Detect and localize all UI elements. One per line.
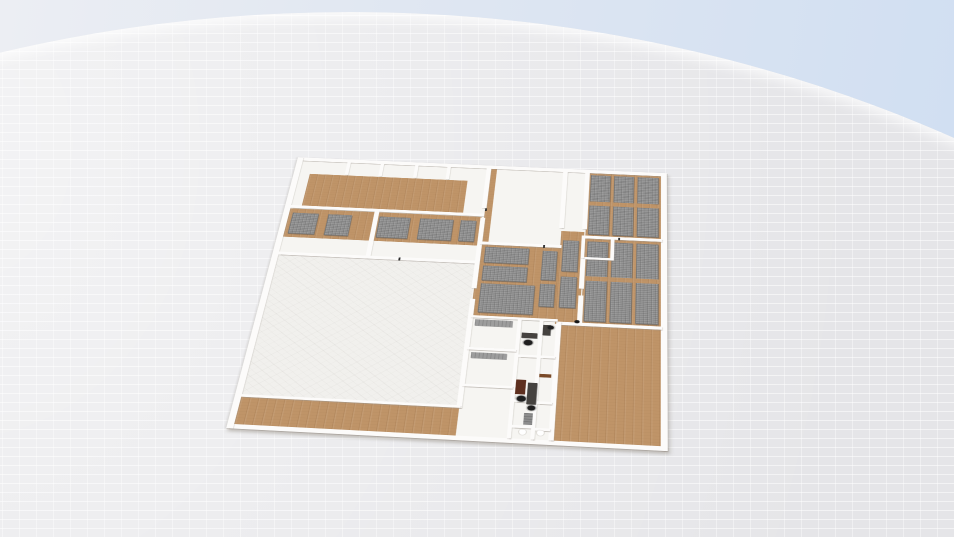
shelf-rack [538, 284, 555, 308]
shelf-rack [324, 214, 353, 236]
plant [574, 320, 579, 323]
wall [462, 384, 513, 389]
door-frame-mark [543, 245, 545, 248]
3d-viewport[interactable] [0, 0, 954, 537]
closet-stub [446, 167, 451, 179]
shelf-rack [376, 216, 411, 238]
wall [518, 354, 538, 357]
shelf-rack [477, 283, 534, 315]
office-chair [547, 325, 554, 329]
toilet [536, 430, 545, 437]
shelf-rack [417, 218, 454, 240]
shelf-rack [561, 240, 579, 272]
door-frame-mark [618, 238, 620, 241]
building-footprint [226, 157, 668, 451]
shelf-rack [481, 265, 527, 282]
outer-wall-right [661, 173, 668, 451]
console-table [539, 374, 551, 378]
shelf-rack [458, 220, 477, 242]
wall [466, 347, 516, 352]
warehouse-rack [583, 241, 608, 322]
tile-hall-floor [242, 254, 476, 405]
wall [559, 172, 568, 228]
closet-stub [345, 163, 351, 175]
closet-stub [413, 166, 419, 178]
shelf-counter [471, 352, 507, 360]
warehouse-rack [635, 244, 658, 325]
closet-stub [378, 164, 384, 176]
door-panel [515, 379, 526, 394]
shelf-rack [288, 213, 319, 235]
floor-plan [226, 157, 668, 451]
wall [537, 401, 552, 404]
desk [526, 383, 537, 405]
closet-wall [610, 240, 614, 260]
wall [541, 355, 556, 358]
shelf-counter [475, 319, 513, 327]
office-chair [523, 340, 533, 346]
shelf-rack [559, 276, 577, 308]
event-hall-floor [551, 324, 661, 446]
toilet [518, 429, 527, 436]
cabinet [523, 413, 533, 425]
shelf-rack [540, 251, 557, 281]
desk [521, 333, 537, 339]
door-frame-mark [485, 208, 487, 211]
shelf-rack [483, 247, 529, 265]
